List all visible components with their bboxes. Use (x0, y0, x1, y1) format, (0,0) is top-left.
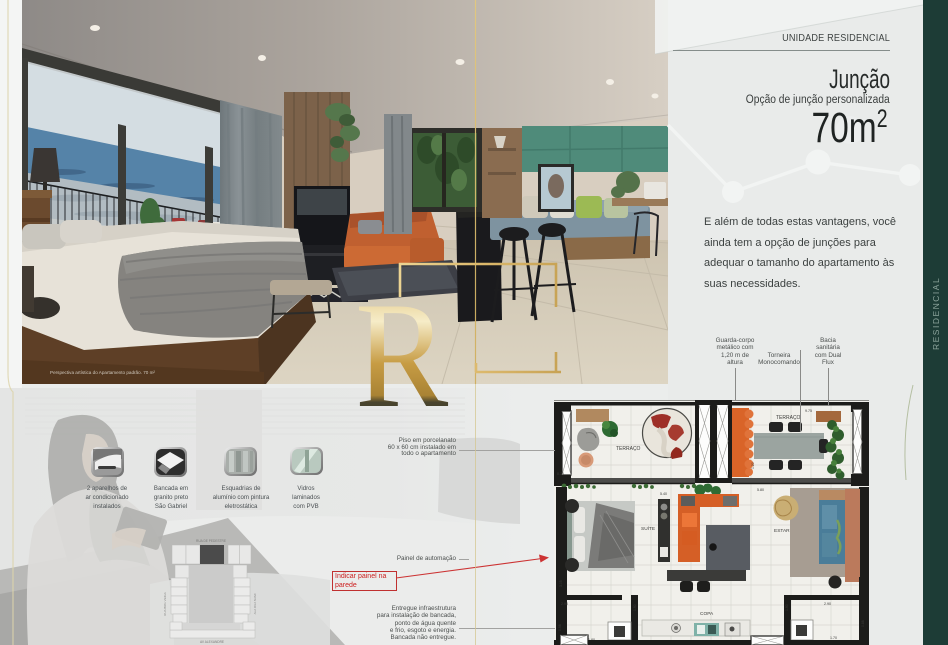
svg-text:0.98: 0.98 (558, 624, 562, 631)
svg-text:com PVB: com PVB (293, 503, 318, 510)
svg-text:granito preto: granito preto (154, 494, 189, 501)
svg-text:2 aparelhos de: 2 aparelhos de (87, 485, 128, 492)
svg-text:Vidros: Vidros (297, 485, 314, 492)
svg-text:9.75: 9.75 (805, 409, 812, 413)
svg-text:1.70: 1.70 (830, 636, 837, 640)
svg-text:Bancada em: Bancada em (154, 485, 188, 492)
svg-text:COPA: COPA (700, 611, 714, 617)
svg-text:SUÍTE: SUÍTE (641, 525, 655, 532)
svg-text:alumínio com pintura: alumínio com pintura (213, 494, 270, 501)
svg-text:0.88: 0.88 (861, 620, 865, 627)
svg-text:instalados: instalados (93, 503, 120, 510)
svg-text:RUA BRG VEIGA: RUA BRG VEIGA (163, 592, 167, 616)
svg-text:Perspectiva artística do Apart: Perspectiva artística do Apartamento pad… (50, 370, 155, 375)
svg-text:0.75: 0.75 (557, 472, 564, 476)
svg-text:ar condicionado: ar condicionado (85, 494, 129, 501)
svg-text:TERRAÇO: TERRAÇO (616, 446, 641, 452)
svg-text:TERRAÇO: TERRAÇO (776, 415, 801, 421)
svg-text:ESTAR: ESTAR (774, 528, 790, 534)
svg-text:2.90: 2.90 (561, 602, 568, 606)
svg-text:RUA DE PEDESTRE: RUA DE PEDESTRE (196, 539, 226, 543)
svg-text:1.90: 1.90 (785, 604, 789, 611)
svg-text:1.20: 1.20 (751, 462, 755, 469)
svg-text:2.90: 2.90 (824, 602, 831, 606)
svg-text:São Gabriel: São Gabriel (155, 503, 187, 510)
svg-text:AV ALEXANDRE: AV ALEXANDRE (200, 640, 224, 644)
svg-text:Esquadrias de: Esquadrias de (222, 485, 262, 492)
svg-text:eletrostática: eletrostática (225, 503, 258, 510)
svg-text:1.90: 1.90 (633, 604, 637, 611)
svg-text:laminados: laminados (292, 494, 320, 501)
svg-text:RESIDENCIAL: RESIDENCIAL (931, 277, 941, 350)
svg-text:5.40: 5.40 (660, 492, 667, 496)
svg-text:5.80: 5.80 (757, 488, 764, 492)
svg-text:ALA RUA NAMI: ALA RUA NAMI (253, 593, 257, 614)
